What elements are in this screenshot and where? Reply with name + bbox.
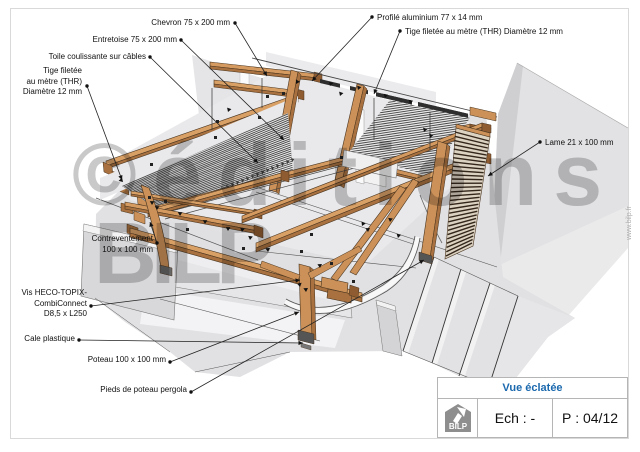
svg-text:BILP: BILP <box>448 422 467 431</box>
